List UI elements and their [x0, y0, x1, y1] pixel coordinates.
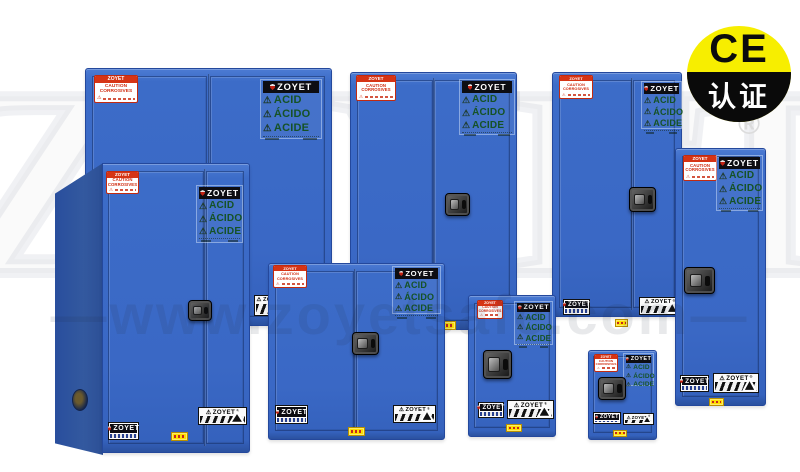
ce-certification-band: 认证	[687, 72, 791, 122]
acid-text: ACID	[633, 364, 649, 372]
brand-bar: ZOYET	[199, 187, 240, 199]
caution-line2: CORROSIVES	[685, 168, 714, 173]
brand-text: ZOYET	[281, 409, 307, 416]
brand-text: ZOYET	[207, 188, 239, 198]
brand-bar: ZOYET	[263, 81, 319, 93]
acid-text: ÁCIDO	[274, 108, 311, 121]
acid-line-en: ⚠ACID	[719, 170, 760, 182]
acid-text: ÁCIDO	[209, 213, 242, 225]
brand-plate: ZOYET	[108, 422, 139, 440]
door-handle	[598, 377, 626, 400]
brand-text: ZOYET	[405, 269, 434, 278]
caution-line2: CORROSIVES	[100, 89, 133, 94]
warning-triangle-icon: ⚠	[626, 382, 631, 389]
acid-text: ACID	[209, 200, 234, 212]
hazard-stripe-label: ⚠ZOYET®	[393, 405, 436, 423]
warning-triangle-icon: ⚠	[626, 364, 631, 371]
brand-text: ZOYET	[650, 84, 679, 93]
acid-line-fr: ⚠ACIDE	[626, 381, 651, 389]
brand-bar: ZOYET	[480, 404, 502, 411]
caution-line2: CORROSIVES	[361, 88, 390, 93]
brand-plate: ZOYET	[593, 412, 621, 424]
warning-triangle-icon: ⚠	[263, 95, 272, 106]
caution-corrosives-label: ZOYET CAUTIONCORROSIVES ⚠	[683, 155, 717, 181]
label-footnote	[263, 136, 319, 140]
website-watermark: —www.zoyetsafe.com—	[0, 282, 800, 347]
brand-bar: ZOYET	[595, 414, 619, 420]
warning-triangle-icon: ⚠	[719, 375, 725, 382]
warning-triangle-icon: ⚠	[97, 96, 101, 101]
caution-corrosives-label: ZOYET CAUTIONCORROSIVES ⚠	[94, 75, 138, 103]
brand-text: ZOYET	[600, 414, 619, 420]
brand-plate-footer	[595, 421, 619, 422]
shield-icon	[680, 379, 684, 383]
brand-text: ZOYET	[213, 409, 235, 416]
label-footnote	[462, 132, 512, 136]
acid-text: ACIDE	[472, 120, 504, 132]
yellow-sticker	[171, 432, 188, 441]
label-footnote	[644, 130, 679, 134]
warning-triangle-icon: ⚠	[644, 96, 651, 105]
warning-triangle-icon: ⚠	[199, 201, 207, 211]
warning-triangle-icon: ⚠	[719, 184, 727, 194]
brand-bar: ZOYET	[719, 157, 760, 169]
acid-warning-label: ZOYET ⚠ACID ⚠ÁCIDO ⚠ACIDE	[196, 185, 243, 243]
product-image: ZOYET ZOYET CAUTIONCORROSIVES ⚠ ZOYET ⚠A…	[0, 0, 800, 472]
caution-line2: CORROSIVES	[563, 87, 589, 91]
acid-line-fr: ⚠ACIDE	[462, 120, 512, 132]
acid-warning-label: ZOYET ⚠ACID ⚠ÁCIDO ⚠ACIDE	[641, 81, 682, 129]
hazard-stripe-label: ⚠ZOYET®	[713, 373, 759, 393]
ce-certification-badge: CE 认证	[687, 26, 791, 122]
brand-text: ZOYET	[727, 158, 759, 168]
acid-cabinet-back-right: ZOYET CAUTIONCORROSIVES ⚠ ZOYET ⚠ACID ⚠Á…	[552, 72, 682, 317]
warning-triangle-icon: ⚠	[562, 93, 566, 97]
brand-text: ZOYET	[277, 82, 312, 92]
yellow-sticker	[506, 424, 522, 432]
shield-icon	[399, 271, 403, 276]
acid-line-fr: ⚠ACIDE	[263, 122, 319, 135]
hazard-stripe-label: ⚠ZOYET®	[198, 407, 247, 425]
vent-hole	[72, 389, 88, 411]
warning-triangle-icon: ⚠	[719, 171, 727, 181]
shield-icon	[644, 86, 648, 91]
shield-icon	[200, 190, 205, 196]
acid-line-en: ⚠ACID	[199, 200, 240, 212]
door-handle	[629, 187, 656, 212]
shield-icon	[108, 426, 112, 431]
acid-line-fr: ⚠ACIDE	[199, 226, 240, 238]
shield-icon	[276, 410, 280, 415]
yellow-sticker	[709, 398, 724, 406]
brand-bar: ZOYET	[626, 355, 651, 363]
acid-warning-label: ZOYET ⚠ACID ⚠ÁCIDO ⚠ACIDE	[623, 353, 654, 386]
acid-line-es: ⚠ÁCIDO	[644, 107, 679, 118]
brand-text: ZOYET	[482, 405, 504, 411]
ce-mark-text: CE	[687, 27, 791, 72]
acid-line-es: ⚠ÁCIDO	[462, 107, 512, 119]
acid-line-es: ⚠ÁCIDO	[199, 213, 240, 225]
warning-triangle-icon: ⚠	[263, 123, 272, 134]
brand-text: ZOYET	[685, 378, 709, 385]
warning-triangle-icon: ⚠	[626, 373, 631, 380]
caution-label-text: CAUTIONCORROSIVES	[95, 83, 137, 96]
warning-triangle-icon: ⚠	[514, 402, 520, 409]
caution-label-footer: ⚠	[684, 175, 716, 181]
shield-icon	[270, 84, 275, 90]
warning-triangle-icon: ⚠	[199, 214, 207, 224]
acid-text: ACID	[472, 94, 497, 106]
acid-warning-label: ZOYET ⚠ACID ⚠ÁCIDO ⚠ACIDE	[459, 79, 515, 135]
acid-line-fr: ⚠ACIDE	[644, 118, 679, 129]
brand-plate-footer	[480, 412, 502, 416]
label-footnote	[719, 208, 760, 212]
brand-plate-footer	[110, 434, 137, 438]
label-footnote	[199, 238, 240, 242]
brand-bar: ZOYET	[644, 83, 679, 94]
acid-text: ACID	[274, 94, 302, 107]
caution-label-footer: ⚠	[107, 188, 138, 194]
shield-icon	[468, 84, 473, 90]
acid-cabinet-tall-right: ZOYET CAUTIONCORROSIVES ⚠ ZOYET ⚠ACID ⚠Á…	[675, 148, 766, 406]
hazard-stripe-label: ⚠ZOYET®	[623, 413, 654, 425]
cabinet-door-left	[559, 80, 632, 308]
brand-bar: ZOYET	[682, 377, 707, 385]
brand-bar: ZOYET	[277, 407, 306, 417]
brand-text: ZOYET	[113, 425, 139, 432]
acid-line-es: ⚠ÁCIDO	[626, 373, 651, 381]
caution-label-footer: ⚠	[595, 367, 617, 371]
acid-text: ACID	[729, 170, 754, 182]
acid-line-en: ⚠ACID	[626, 364, 651, 372]
warning-triangle-icon: ⚠	[206, 409, 212, 416]
brand-text: ZOYET	[631, 356, 652, 362]
yellow-sticker	[613, 430, 627, 437]
acid-cabinet-smallest: ZOYET CAUTIONCORROSIVES ⚠ ZOYET ⚠ACID ⚠Á…	[588, 350, 657, 440]
caution-label-brand: ZOYET	[95, 76, 137, 83]
caution-label-text: CAUTIONCORROSIVES	[684, 162, 716, 174]
brand-plate: ZOYET	[478, 402, 504, 418]
warning-triangle-icon: ⚠	[597, 367, 600, 370]
acid-warning-label: ZOYET ⚠ACID ⚠ÁCIDO ⚠ACIDE	[260, 79, 322, 139]
shield-icon	[720, 160, 725, 166]
shield-icon	[477, 405, 480, 409]
warning-triangle-icon: ⚠	[462, 108, 470, 118]
acid-text: ACIDE	[209, 226, 241, 238]
acid-line-es: ⚠ÁCIDO	[719, 183, 760, 195]
warning-triangle-icon: ⚠	[109, 188, 113, 193]
brand-text: ZOYET	[726, 375, 748, 382]
brand-plate: ZOYET	[680, 375, 709, 392]
caution-line2: CORROSIVES	[277, 277, 303, 281]
acid-line-fr: ⚠ACIDE	[719, 196, 760, 208]
warning-triangle-icon: ⚠	[399, 407, 404, 414]
door-handle	[445, 193, 470, 216]
acid-text: ACIDE	[653, 118, 682, 129]
caution-corrosives-label: ZOYET CAUTIONCORROSIVES ⚠	[559, 75, 593, 99]
warning-triangle-icon: ⚠	[686, 175, 690, 180]
warning-triangle-icon: ⚠	[359, 95, 363, 100]
brand-text: ZOYET	[474, 82, 506, 92]
acid-line-es: ⚠ÁCIDO	[263, 108, 319, 121]
caution-label-footer: ⚠	[357, 95, 395, 101]
caution-corrosives-label: ZOYET CAUTIONCORROSIVES ⚠	[356, 75, 396, 101]
caution-label-footer: ⚠	[95, 96, 137, 102]
acid-text: ÁCIDO	[653, 107, 683, 118]
brand-text: ZOYET	[405, 407, 426, 414]
acid-line-en: ⚠ACID	[462, 94, 512, 106]
acid-text: ACIDE	[274, 122, 309, 135]
shield-icon	[595, 415, 598, 418]
acid-text: ÁCIDO	[729, 183, 762, 195]
warning-triangle-icon: ⚠	[462, 95, 470, 105]
warning-triangle-icon: ⚠	[644, 119, 651, 128]
acid-text: ACIDE	[729, 196, 761, 208]
caution-label-text: CAUTIONCORROSIVES	[357, 82, 395, 94]
yellow-sticker	[348, 427, 365, 436]
acid-text: ACID	[653, 95, 676, 106]
brand-plate-footer	[682, 386, 707, 390]
warning-triangle-icon: ⚠	[462, 120, 470, 130]
brand-bar: ZOYET	[462, 81, 512, 93]
shield-icon	[626, 357, 629, 361]
brand-text: ZOYET	[521, 402, 543, 409]
warning-triangle-icon: ⚠	[644, 107, 651, 116]
acid-line-en: ⚠ACID	[644, 95, 679, 106]
brand-bar: ZOYET	[395, 268, 438, 279]
hazard-stripe-label: ⚠ZOYET®	[507, 400, 554, 419]
caution-corrosives-label: ZOYET CAUTIONCORROSIVES ⚠	[594, 354, 618, 372]
acid-line-en: ⚠ACID	[263, 94, 319, 107]
warning-triangle-icon: ⚠	[263, 109, 272, 120]
warning-triangle-icon: ⚠	[719, 196, 727, 206]
acid-warning-label: ZOYET ⚠ACID ⚠ÁCIDO ⚠ACIDE	[716, 155, 763, 211]
warning-triangle-icon: ⚠	[199, 226, 207, 236]
brand-plate-footer	[277, 418, 306, 422]
caution-corrosives-label: ZOYET CAUTIONCORROSIVES ⚠	[106, 171, 139, 194]
acid-text: ACIDE	[633, 381, 654, 389]
door-handle	[483, 350, 512, 379]
brand-bar: ZOYET	[110, 424, 137, 433]
caution-label-footer: ⚠	[560, 93, 592, 98]
brand-plate: ZOYET	[275, 405, 308, 424]
ce-certification-cn-text: 认证	[708, 75, 770, 115]
acid-text: ÁCIDO	[472, 107, 505, 119]
acid-text: ÁCIDO	[633, 373, 655, 381]
